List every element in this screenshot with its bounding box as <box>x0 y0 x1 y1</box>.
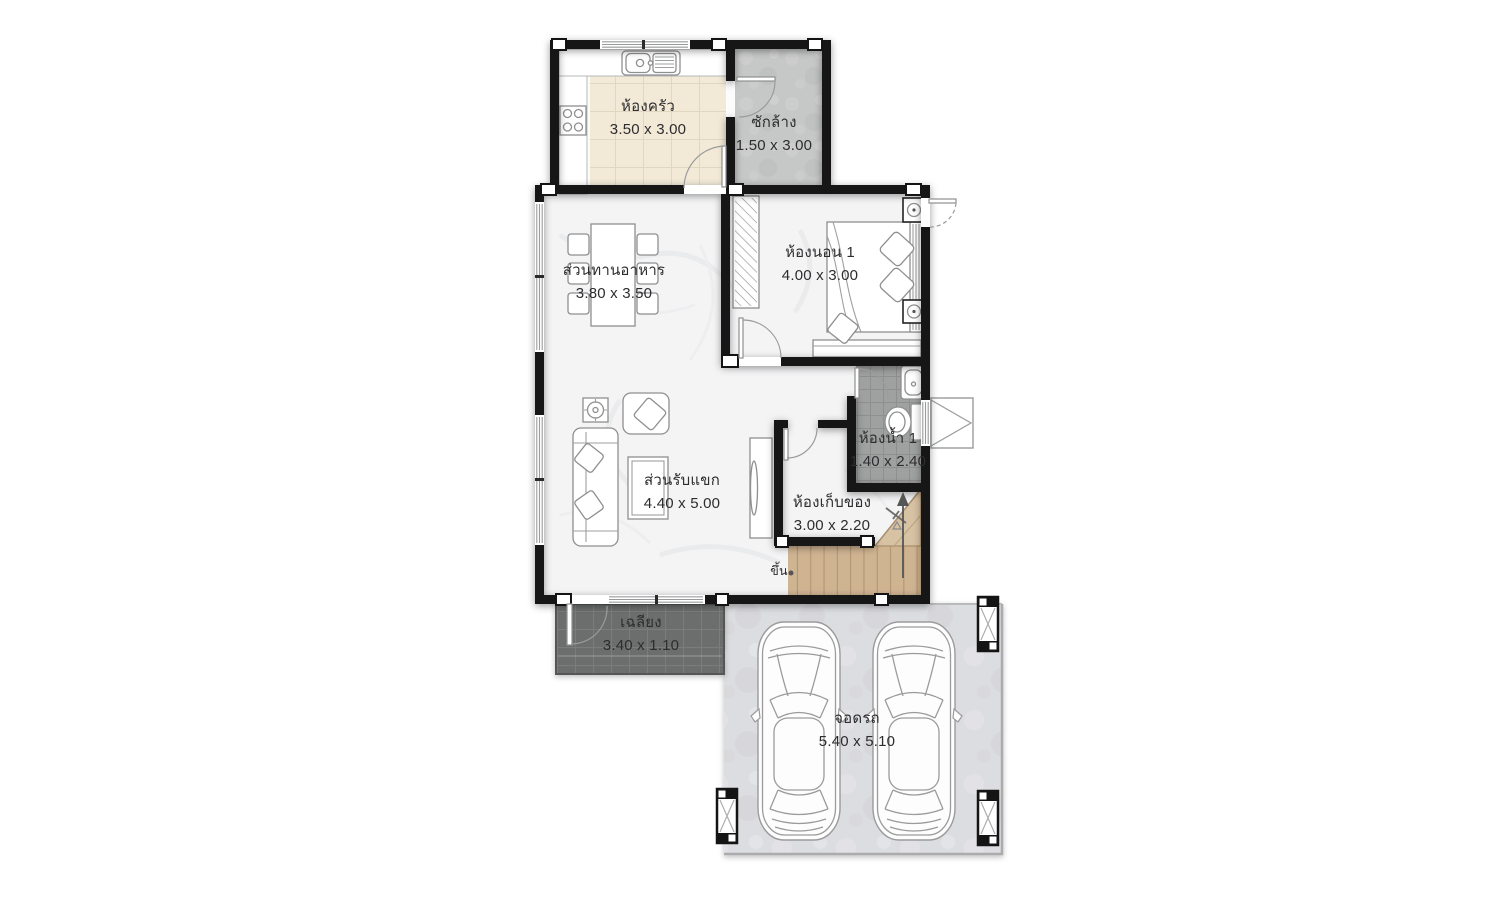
tv-cabinet <box>750 438 772 538</box>
window-kitchen-top <box>600 40 690 49</box>
kitchen-stove <box>560 106 586 135</box>
window-dining-left <box>535 202 544 352</box>
room-label-living: ส่วนรับแขก 4.40 x 5.00 <box>644 470 720 515</box>
room-label-laundry: ซักล้าง 1.50 x 3.00 <box>736 112 812 157</box>
room-label-kitchen: ห้องครัว 3.50 x 3.00 <box>610 96 686 141</box>
bathroom-louver-window <box>931 398 973 448</box>
room-name: ห้องเก็บของ <box>793 492 871 515</box>
room-dims: 1.40 x 2.40 <box>850 451 926 474</box>
door-bedroom-exterior <box>929 199 956 227</box>
room-label-garage: จอดรถ 5.40 x 5.10 <box>819 708 895 753</box>
garage-pillar-bottom-right <box>978 791 998 845</box>
room-label-storage: ห้องเก็บของ 3.00 x 2.20 <box>793 492 871 537</box>
garage-pillar-top-right <box>978 597 998 651</box>
armchair <box>623 393 669 434</box>
room-name: เฉลียง <box>603 612 679 635</box>
room-label-bedroom1: ห้องนอน 1 4.00 x 3.00 <box>782 242 858 287</box>
room-dims: 3.80 x 3.50 <box>563 283 665 306</box>
sofa <box>573 428 618 546</box>
room-name: ห้องครัว <box>610 96 686 119</box>
room-label-dining: ส่วนทานอาหาร 3.80 x 3.50 <box>563 260 665 305</box>
room-name: จอดรถ <box>819 708 895 731</box>
window-living-bottom <box>607 595 705 604</box>
garage-pillar-bottom-left <box>717 789 737 843</box>
room-name: ห้องน้ำ 1 <box>850 428 926 451</box>
room-name: ห้องนอน 1 <box>782 242 858 265</box>
stairs-up-label: ขึ้น <box>770 562 788 581</box>
room-name: ส่วนรับแขก <box>644 470 720 493</box>
room-label-bathroom1: ห้องน้ำ 1 1.40 x 2.40 <box>850 428 926 473</box>
kitchen-sink <box>622 51 680 75</box>
room-name: ซักล้าง <box>736 112 812 135</box>
room-dims: 1.50 x 3.00 <box>736 135 812 158</box>
room-dims: 3.50 x 3.00 <box>610 119 686 142</box>
floor-plan-canvas: ห้องครัว 3.50 x 3.00 ซักล้าง 1.50 x 3.00… <box>0 0 1500 900</box>
room-dims: 4.00 x 3.00 <box>782 265 858 288</box>
room-dims: 5.40 x 5.10 <box>819 731 895 754</box>
room-dims: 3.40 x 1.10 <box>603 635 679 658</box>
room-dims: 3.00 x 2.20 <box>793 515 871 538</box>
room-name: ส่วนทานอาหาร <box>563 260 665 283</box>
floor-lamp-icon <box>583 398 608 422</box>
room-dims: 4.40 x 5.00 <box>644 493 720 516</box>
wardrobe <box>733 196 759 308</box>
window-living-left <box>535 415 544 545</box>
room-label-porch: เฉลียง 3.40 x 1.10 <box>603 612 679 657</box>
